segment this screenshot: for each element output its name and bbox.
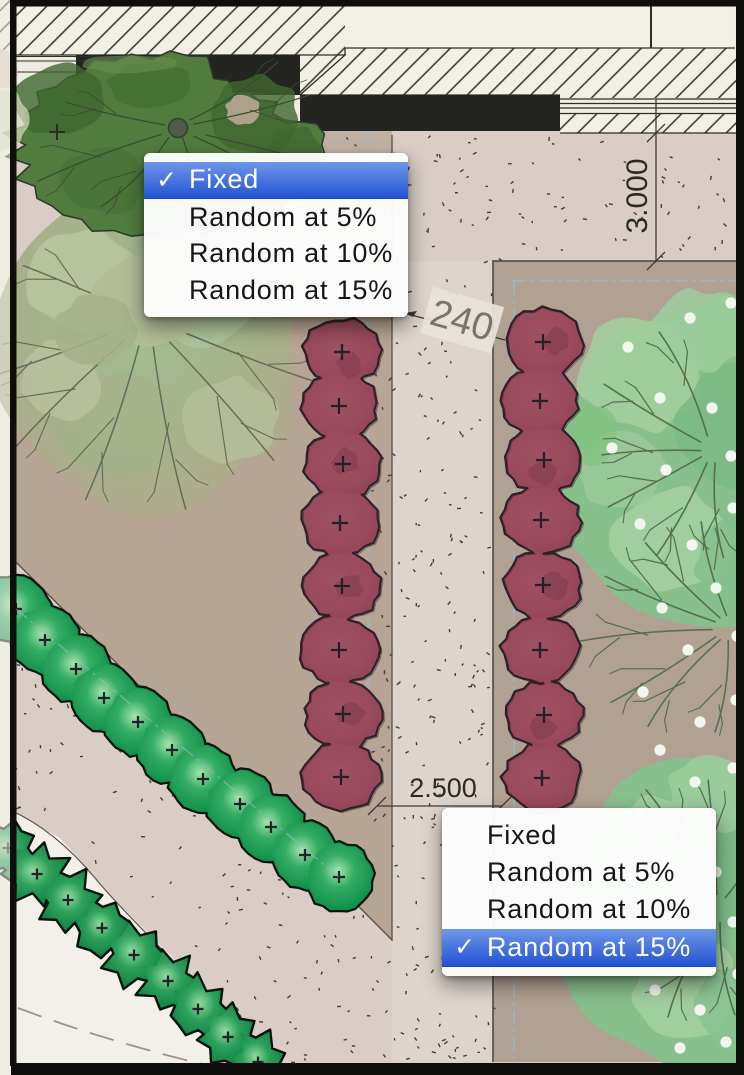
svg-text:2.500: 2.500 (409, 773, 477, 803)
svg-text:3.000: 3.000 (621, 158, 654, 233)
